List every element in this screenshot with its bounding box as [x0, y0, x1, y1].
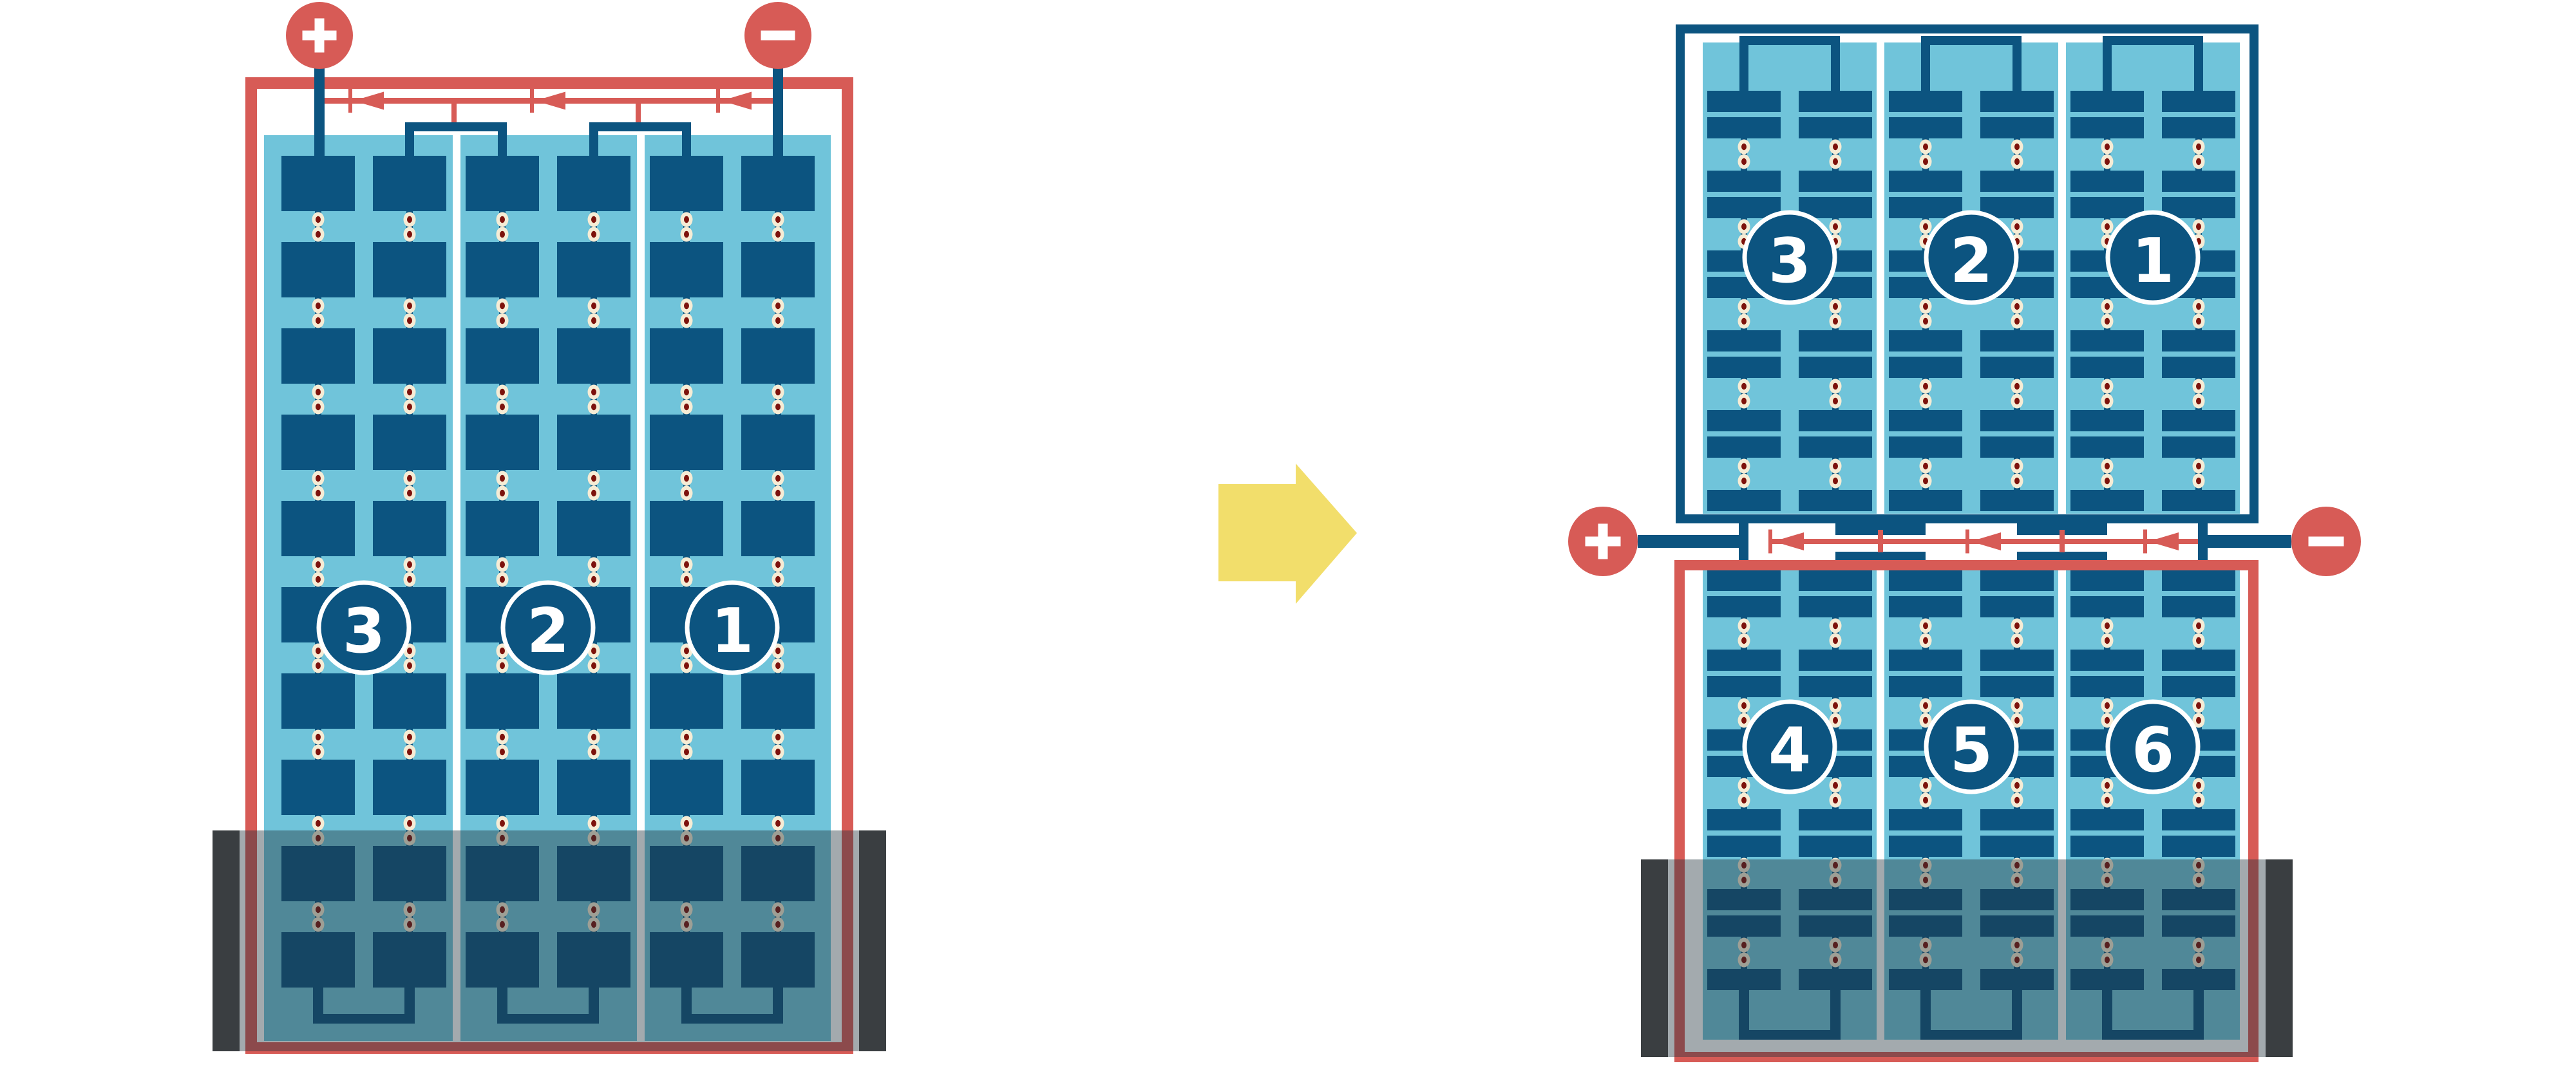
string-number-label: 1 — [2132, 226, 2174, 297]
cell-connector-dot-core — [1923, 463, 1928, 469]
cell-connector-dot-core — [316, 216, 321, 223]
cell-connector-dot-core — [775, 734, 781, 740]
cell-connector-dot-core — [775, 749, 781, 755]
solar-cell — [650, 156, 723, 211]
cell-connector-dot-core — [684, 317, 689, 324]
negative-junction-bar — [2198, 523, 2208, 560]
half-cut-solar-cell — [1889, 596, 1962, 617]
solar-cell — [281, 328, 355, 384]
cell-connector-dot-core — [500, 404, 505, 410]
half-cut-solar-cell — [1980, 436, 2054, 458]
solar-cell — [373, 328, 446, 384]
half-cut-solar-cell — [2162, 676, 2235, 697]
bypass-diode-icon — [716, 89, 752, 113]
shade-post-right — [2266, 859, 2293, 1057]
cell-connector-dot-core — [407, 317, 412, 324]
cell-connector-dot-core — [2196, 144, 2201, 150]
half-cut-solar-cell — [1980, 809, 2054, 830]
cell-connector-dot-core — [591, 216, 596, 223]
cell-connector-dot-core — [2105, 158, 2110, 165]
cell-connector-dot-core — [1923, 223, 1928, 230]
cell-connector-dot-core — [591, 749, 596, 755]
half-cut-solar-cell — [1707, 330, 1781, 351]
cell-connector-dot-core — [2196, 383, 2201, 389]
cell-connector-dot-core — [2014, 478, 2020, 484]
diagram-svg: 321321456 — [0, 0, 2576, 1068]
cell-connector-dot-core — [1833, 717, 1838, 724]
half-cut-solar-cell — [1799, 410, 1872, 431]
cell-connector-dot-core — [500, 216, 505, 223]
left-module: 321 — [213, 2, 886, 1051]
cell-connector-dot-core — [2014, 637, 2020, 644]
cell-connector-dot-core — [591, 303, 596, 309]
diode-triangle — [2148, 532, 2179, 550]
half-cut-solar-cell — [1799, 836, 1872, 857]
cell-connector-dot-core — [775, 576, 781, 583]
cell-connector-dot-core — [316, 662, 321, 669]
half-cut-solar-cell — [1707, 596, 1781, 617]
string-divider — [1877, 42, 1884, 514]
cell-connector-dot-core — [407, 734, 412, 740]
string-tab-busbar — [1835, 552, 1926, 560]
minus-icon — [2309, 537, 2344, 547]
solar-cell — [281, 156, 355, 211]
half-cut-solar-cell — [1707, 171, 1781, 192]
cell-connector-dot-core — [2105, 797, 2110, 803]
half-cut-solar-cell — [2070, 436, 2144, 458]
cell-connector-dot-core — [1923, 158, 1928, 165]
cell-connector-dot-core — [775, 648, 781, 654]
solar-cell — [557, 760, 630, 815]
cell-connector-dot-core — [591, 820, 596, 827]
cell-connector-dot-core — [2014, 797, 2020, 803]
cell-connector-dot-core — [407, 389, 412, 395]
cell-connector-dot-core — [2196, 158, 2201, 165]
half-cut-solar-cell — [1799, 357, 1872, 378]
bypass-diode-icon — [530, 89, 565, 113]
half-cut-solar-cell — [1980, 490, 2054, 511]
cell-connector-dot-core — [1833, 463, 1838, 469]
solar-cell — [373, 501, 446, 556]
cell-connector-dot-core — [1923, 398, 1928, 404]
plus-icon — [315, 19, 325, 53]
string-number-label: 3 — [343, 596, 385, 667]
top-busbar-leg — [498, 131, 507, 156]
cell-connector-dot-core — [1923, 637, 1928, 644]
diode-triangle — [721, 92, 752, 110]
cell-connector-dot-core — [2196, 782, 2201, 789]
flow-arrow — [1218, 464, 1357, 604]
cell-connector-dot-core — [1741, 144, 1747, 150]
cell-connector-dot-core — [500, 662, 505, 669]
cell-connector-dot-core — [1833, 383, 1838, 389]
half-cut-solar-cell — [1707, 809, 1781, 830]
solar-cell — [373, 415, 446, 470]
cell-connector-dot-core — [2105, 717, 2110, 724]
diode-cathode-bar — [716, 89, 720, 113]
solar-cell — [557, 242, 630, 297]
diode-cathode-bar — [530, 89, 534, 113]
cell-connector-dot-core — [1741, 158, 1747, 165]
solar-cell — [557, 415, 630, 470]
half-cut-solar-cell — [2070, 330, 2144, 351]
cell-connector-dot-core — [2014, 398, 2020, 404]
cell-connector-dot-core — [591, 475, 596, 482]
half-cut-solar-cell — [1799, 91, 1872, 112]
cell-connector-dot-core — [2014, 782, 2020, 789]
cell-connector-dot-core — [2105, 144, 2110, 150]
cell-connector-dot-core — [2014, 702, 2020, 709]
cell-connector-dot-core — [1741, 383, 1747, 389]
half-cut-solar-cell — [2162, 330, 2235, 351]
half-cut-solar-cell — [2070, 357, 2144, 378]
cell-connector-dot-core — [775, 475, 781, 482]
string-number-badge: 3 — [1745, 212, 1835, 303]
cell-connector-dot-core — [316, 561, 321, 568]
cell-connector-dot-core — [1923, 702, 1928, 709]
cell-connector-dot-core — [407, 404, 412, 410]
solar-cell — [373, 673, 446, 729]
half-cut-solar-cell — [2070, 650, 2144, 671]
cell-connector-dot-core — [500, 734, 505, 740]
cell-connector-dot-core — [591, 734, 596, 740]
half-cut-solar-cell — [2070, 490, 2144, 511]
diode-cathode-bar — [348, 89, 352, 113]
cell-connector-dot-core — [684, 648, 689, 654]
cell-connector-dot-core — [684, 734, 689, 740]
half-cut-solar-cell — [1980, 357, 2054, 378]
cell-connector-dot-core — [591, 317, 596, 324]
diode-tap-wire — [1878, 530, 1883, 552]
string-divider — [2058, 42, 2066, 514]
half-cut-solar-cell — [1707, 570, 1781, 591]
half-cut-solar-cell — [1707, 91, 1781, 112]
shade-post-left — [213, 830, 240, 1051]
solar-cell — [741, 156, 815, 211]
cell-connector-dot-core — [775, 662, 781, 669]
cell-connector-dot-core — [316, 648, 321, 654]
cell-connector-dot-core — [407, 576, 412, 583]
positive-terminal — [1568, 507, 1638, 576]
half-cut-solar-cell — [1889, 570, 1962, 591]
half-cut-solar-cell — [1799, 676, 1872, 697]
cell-connector-dot-core — [1923, 303, 1928, 310]
cell-connector-dot-core — [1833, 303, 1838, 310]
cell-connector-dot-core — [2196, 398, 2201, 404]
bypass-diode-icon — [2143, 530, 2179, 554]
cell-connector-dot-core — [684, 303, 689, 309]
cell-connector-dot-core — [500, 561, 505, 568]
cell-connector-dot-core — [1923, 717, 1928, 724]
cell-connector-dot-core — [2196, 637, 2201, 644]
half-cut-solar-cell — [2162, 171, 2235, 192]
solar-cell — [281, 242, 355, 297]
half-cut-solar-cell — [1980, 91, 2054, 112]
half-cut-solar-cell — [2070, 836, 2144, 857]
half-cut-solar-cell — [1707, 490, 1781, 511]
cell-connector-dot-core — [407, 561, 412, 568]
cell-connector-dot-core — [1923, 623, 1928, 629]
cell-connector-dot-core — [407, 749, 412, 755]
cell-connector-dot-core — [1741, 318, 1747, 324]
solar-cell — [281, 501, 355, 556]
cell-connector-dot-core — [407, 231, 412, 238]
string-number-badge: 5 — [1926, 702, 2016, 792]
cell-connector-dot-core — [316, 475, 321, 482]
cell-connector-dot-core — [2196, 717, 2201, 724]
shade-region — [213, 830, 886, 1051]
top-busbar — [1739, 36, 1840, 45]
half-cut-solar-cell — [1980, 570, 2054, 591]
cell-connector-dot-core — [591, 576, 596, 583]
cell-connector-dot-core — [2014, 303, 2020, 310]
cell-connector-dot-core — [500, 317, 505, 324]
string-number-label: 6 — [2132, 715, 2174, 786]
half-cut-solar-cell — [1980, 596, 2054, 617]
cell-connector-dot-core — [1741, 797, 1747, 803]
cell-connector-dot-core — [1741, 398, 1747, 404]
cell-connector-dot-core — [684, 404, 689, 410]
solar-cell — [466, 673, 539, 729]
cell-connector-dot-core — [2105, 303, 2110, 310]
cell-connector-dot-core — [2014, 318, 2020, 324]
cell-connector-dot-core — [1833, 478, 1838, 484]
top-busbar-leg — [1739, 45, 1748, 91]
half-cut-solar-cell — [2162, 357, 2235, 378]
solar-cell — [373, 156, 446, 211]
cell-connector-dot-core — [1833, 702, 1838, 709]
cell-connector-dot-core — [1741, 782, 1747, 789]
cell-connector-dot-core — [500, 303, 505, 309]
cell-connector-dot-core — [1833, 637, 1838, 644]
solar-cell — [373, 242, 446, 297]
half-cut-solar-cell — [1707, 117, 1781, 138]
half-cut-solar-cell — [1707, 436, 1781, 458]
solar-cell — [557, 673, 630, 729]
half-cut-solar-cell — [1980, 171, 2054, 192]
diode-triangle — [354, 92, 384, 110]
cell-connector-dot-core — [500, 490, 505, 496]
half-cut-solar-cell — [1889, 410, 1962, 431]
cell-connector-dot-core — [2105, 782, 2110, 789]
half-cut-solar-cell — [1707, 650, 1781, 671]
negative-terminal — [744, 2, 811, 69]
cell-connector-dot-core — [591, 490, 596, 496]
solar-cell — [557, 501, 630, 556]
string-number-label: 1 — [711, 596, 753, 667]
cell-connector-dot-core — [2105, 223, 2110, 230]
diode-tap-wire — [636, 104, 641, 123]
string-number-label: 2 — [527, 596, 569, 667]
cell-connector-dot-core — [1923, 383, 1928, 389]
cell-connector-dot-core — [407, 648, 412, 654]
top-busbar-leg — [589, 131, 598, 156]
string-number-label: 2 — [1950, 226, 1993, 297]
top-busbar — [1921, 36, 2022, 45]
cell-connector-dot-core — [2196, 478, 2201, 484]
solar-cell — [557, 328, 630, 384]
cell-connector-dot-core — [775, 389, 781, 395]
cell-connector-dot-core — [407, 662, 412, 669]
cell-connector-dot-core — [2014, 623, 2020, 629]
cell-connector-dot-core — [591, 662, 596, 669]
half-cut-solar-cell — [2070, 410, 2144, 431]
half-cut-solar-cell — [1889, 836, 1962, 857]
cell-connector-dot-core — [1923, 797, 1928, 803]
half-cut-solar-cell — [2070, 117, 2144, 138]
solar-cell — [466, 242, 539, 297]
half-cut-solar-cell — [1799, 809, 1872, 830]
cell-connector-dot-core — [500, 820, 505, 827]
cell-connector-dot-core — [775, 303, 781, 309]
half-cut-solar-cell — [1799, 490, 1872, 511]
diode-triangle — [535, 92, 565, 110]
cell-connector-dot-core — [407, 490, 412, 496]
solar-cell — [466, 501, 539, 556]
top-busbar — [405, 122, 507, 131]
cell-connector-dot-core — [684, 389, 689, 395]
solar-cell — [466, 156, 539, 211]
cell-connector-dot-core — [2105, 702, 2110, 709]
negative-lead-wire — [2208, 535, 2291, 548]
half-cut-solar-cell — [2162, 570, 2235, 591]
cell-connector-dot-core — [684, 561, 689, 568]
cell-connector-dot-core — [1833, 144, 1838, 150]
top-busbar-leg — [2194, 45, 2203, 91]
diagram-stage: 321321456 — [0, 0, 2576, 1068]
string-number-badge: 1 — [687, 583, 777, 673]
positive-junction-bar — [1739, 523, 1748, 560]
half-cut-solar-cell — [1889, 357, 1962, 378]
half-cut-solar-cell — [1889, 676, 1962, 697]
top-busbar-leg — [1831, 45, 1840, 91]
cell-connector-dot-core — [2014, 383, 2020, 389]
cell-connector-dot-core — [2196, 223, 2201, 230]
half-cut-solar-cell — [2070, 91, 2144, 112]
cell-connector-dot-core — [1833, 782, 1838, 789]
solar-cell — [650, 673, 723, 729]
cell-connector-dot-core — [2014, 144, 2020, 150]
cell-connector-dot-core — [2196, 702, 2201, 709]
solar-cell — [741, 242, 815, 297]
half-cut-solar-cell — [2162, 809, 2235, 830]
solar-cell — [650, 242, 723, 297]
cell-connector-dot-core — [775, 820, 781, 827]
top-busbar-leg — [2103, 45, 2112, 91]
cell-connector-dot-core — [2196, 623, 2201, 629]
negative-terminal — [2291, 507, 2361, 576]
top-busbar — [589, 122, 691, 131]
cell-connector-dot-core — [500, 231, 505, 238]
cell-connector-dot-core — [500, 648, 505, 654]
string-number-badge: 2 — [503, 583, 593, 673]
cell-connector-dot-core — [684, 749, 689, 755]
half-cut-solar-cell — [1980, 836, 2054, 857]
half-cut-solar-cell — [1889, 91, 1962, 112]
half-cut-solar-cell — [2162, 490, 2235, 511]
string-tab-busbar — [2017, 552, 2107, 560]
solar-cell — [741, 328, 815, 384]
cell-connector-dot-core — [316, 734, 321, 740]
top-busbar-leg — [405, 131, 414, 156]
diode-triangle — [1774, 532, 1804, 550]
solar-cell — [373, 760, 446, 815]
bypass-diode-icon — [1768, 530, 1804, 554]
half-cut-solar-cell — [1889, 171, 1962, 192]
half-cut-solar-cell — [1889, 490, 1962, 511]
cell-connector-dot-core — [684, 231, 689, 238]
positive-lead-wire — [1638, 535, 1739, 548]
cell-connector-dot-core — [775, 216, 781, 223]
cell-connector-dot-core — [591, 648, 596, 654]
string-number-badge: 3 — [319, 583, 409, 673]
cell-connector-dot-core — [316, 749, 321, 755]
cell-connector-dot-core — [775, 490, 781, 496]
string-number-label: 4 — [1768, 715, 1811, 786]
cell-connector-dot-core — [2014, 717, 2020, 724]
half-cut-solar-cell — [2070, 809, 2144, 830]
cell-connector-dot-core — [2105, 623, 2110, 629]
cell-connector-dot-core — [1923, 478, 1928, 484]
cell-connector-dot-core — [684, 216, 689, 223]
cell-connector-dot-core — [2105, 398, 2110, 404]
shade-overlay — [213, 830, 886, 1051]
cell-connector-dot-core — [591, 561, 596, 568]
cell-connector-dot-core — [1833, 158, 1838, 165]
half-cut-solar-cell — [2162, 436, 2235, 458]
cell-connector-dot-core — [591, 404, 596, 410]
half-cut-solar-cell — [2162, 650, 2235, 671]
cell-connector-dot-core — [407, 303, 412, 309]
solar-cell — [741, 760, 815, 815]
top-busbar-leg — [682, 131, 691, 156]
cell-connector-dot-core — [591, 389, 596, 395]
half-cut-solar-cell — [1980, 330, 2054, 351]
shade-post-left — [1641, 859, 1668, 1057]
half-cut-solar-cell — [1707, 676, 1781, 697]
string-number-label: 5 — [1950, 715, 1993, 786]
cell-connector-dot-core — [684, 576, 689, 583]
cell-connector-dot-core — [316, 490, 321, 496]
cell-connector-dot-core — [684, 490, 689, 496]
cell-connector-dot-core — [2196, 303, 2201, 310]
half-cut-solar-cell — [1889, 436, 1962, 458]
solar-cell — [741, 501, 815, 556]
cell-connector-dot-core — [684, 475, 689, 482]
top-busbar-leg — [2012, 45, 2022, 91]
cell-connector-dot-core — [407, 216, 412, 223]
minus-icon — [761, 31, 795, 41]
cell-connector-dot-core — [2105, 383, 2110, 389]
cell-connector-dot-core — [1833, 318, 1838, 324]
cell-connector-dot-core — [1833, 623, 1838, 629]
half-cut-solar-cell — [1799, 596, 1872, 617]
cell-connector-dot-core — [407, 475, 412, 482]
string-number-label: 3 — [1768, 226, 1811, 297]
cell-connector-dot-core — [775, 404, 781, 410]
right-top-module: 321 — [1680, 29, 2254, 519]
half-cut-solar-cell — [2070, 676, 2144, 697]
cell-connector-dot-core — [407, 820, 412, 827]
half-cut-solar-cell — [1980, 676, 2054, 697]
half-cut-solar-cell — [1799, 650, 1872, 671]
string-number-badge: 1 — [2108, 212, 2198, 303]
solar-cell — [741, 415, 815, 470]
cell-connector-dot-core — [1741, 702, 1747, 709]
cell-connector-dot-core — [2196, 463, 2201, 469]
solar-cell — [650, 501, 723, 556]
half-cut-solar-cell — [2070, 570, 2144, 591]
